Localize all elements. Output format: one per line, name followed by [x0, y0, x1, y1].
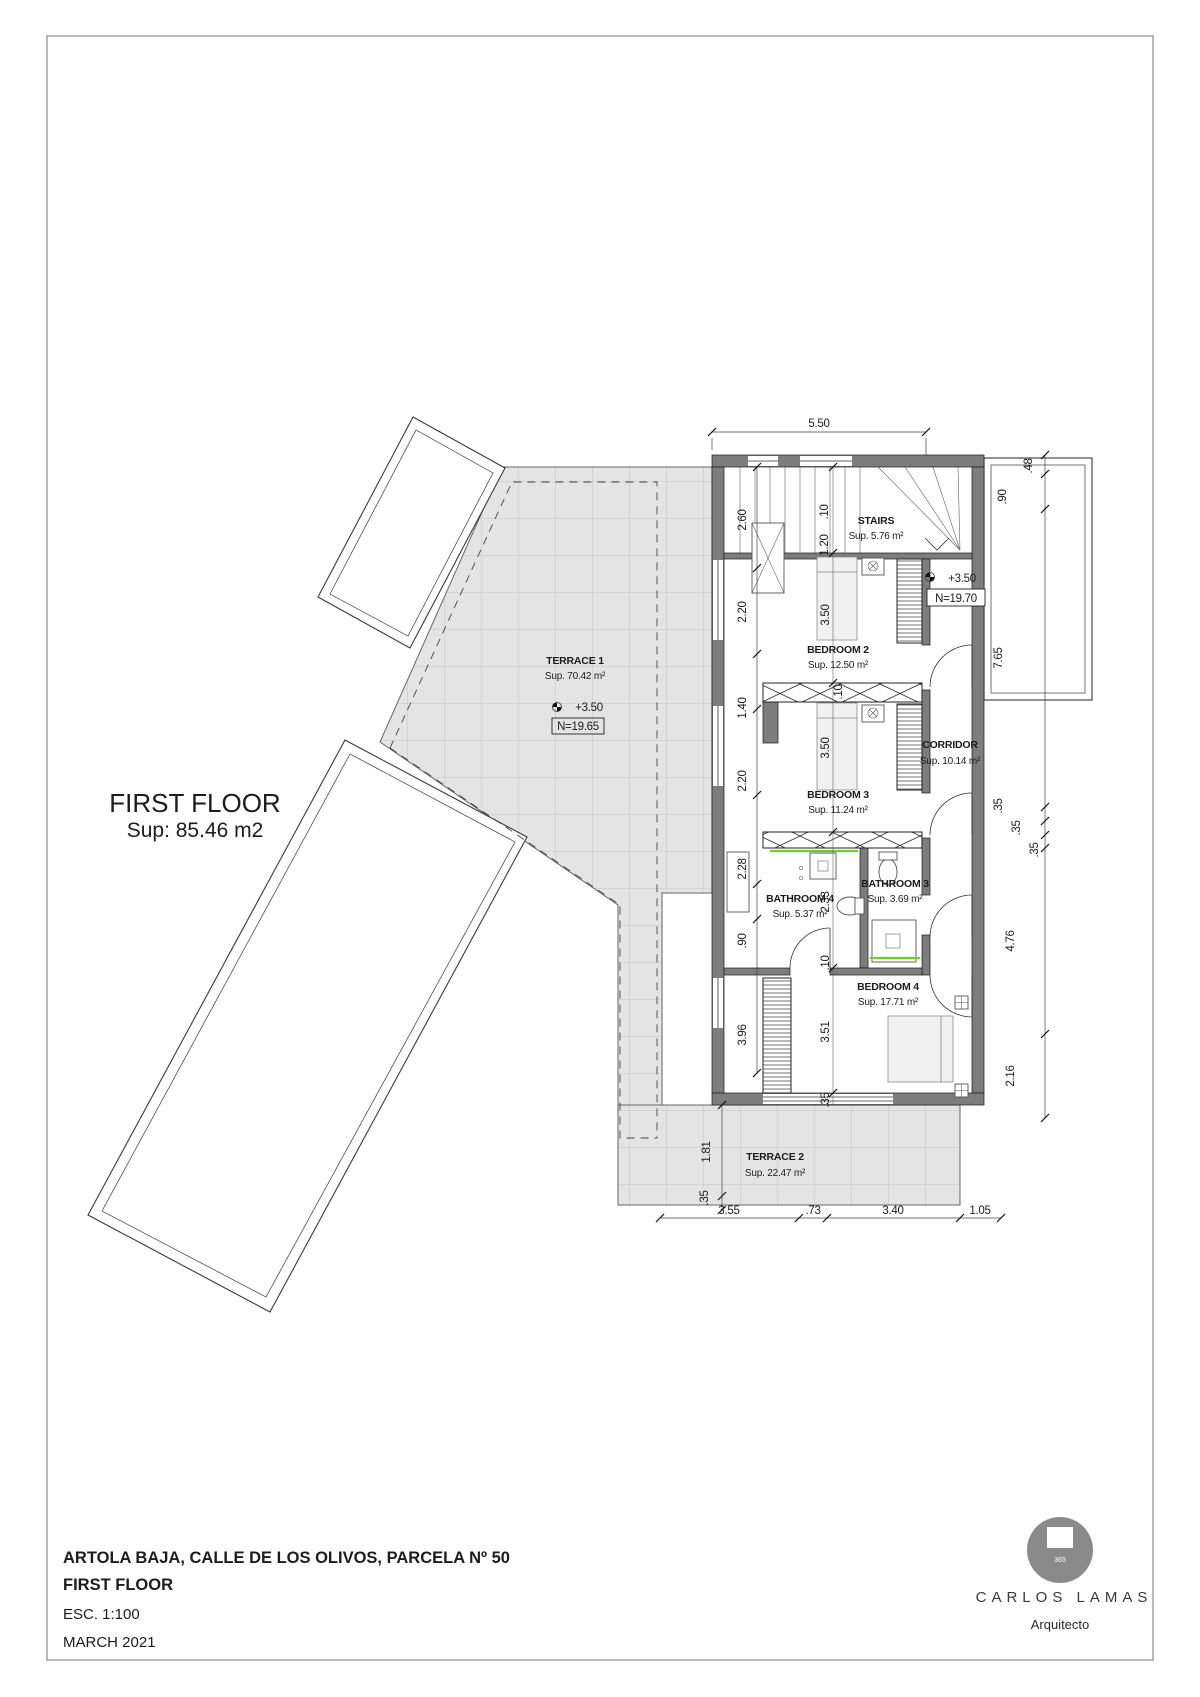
svg-text:N=19.65: N=19.65: [557, 721, 599, 733]
svg-text:CORRIDOR: CORRIDOR: [922, 739, 978, 751]
svg-text:+3.50: +3.50: [948, 573, 976, 585]
logo-circle-icon: [1027, 1517, 1093, 1583]
svg-text:Sup. 11.24 m²: Sup. 11.24 m²: [808, 805, 868, 816]
floor-area: Sup: 85.46 m2: [127, 819, 264, 842]
svg-text:2.20: 2.20: [737, 770, 749, 791]
svg-text:Sup. 3.69 m²: Sup. 3.69 m²: [868, 894, 924, 905]
svg-text:3.96: 3.96: [737, 1024, 749, 1045]
logo-square-icon: [1047, 1527, 1073, 1548]
svg-text:3.55: 3.55: [718, 1205, 739, 1217]
svg-text:.35: .35: [699, 1190, 711, 1205]
drawing-title: FIRST FLOOR: [63, 1576, 173, 1594]
ceiling-light-bedroom3: [862, 705, 884, 722]
svg-text:BEDROOM 3: BEDROOM 3: [807, 789, 869, 801]
svg-text:Sup. 12.50 m²: Sup. 12.50 m²: [808, 660, 869, 671]
svg-text:2.16: 2.16: [1005, 1065, 1017, 1086]
svg-text:BATHROOM 3: BATHROOM 3: [861, 878, 929, 890]
svg-text:.73: .73: [805, 1205, 820, 1217]
architect-subtitle: Arquitecto: [1031, 1617, 1090, 1632]
svg-text:BEDROOM 4: BEDROOM 4: [857, 981, 919, 993]
svg-text:.10: .10: [820, 955, 832, 970]
svg-text:Sup. 22.47 m²: Sup. 22.47 m²: [745, 1168, 806, 1179]
svg-text:2.28: 2.28: [737, 858, 749, 879]
ceiling-light-bedroom2: [862, 558, 884, 575]
floor-title: FIRST FLOOR: [109, 788, 280, 818]
svg-text:TERRACE 2: TERRACE 2: [746, 1151, 804, 1163]
svg-text:2.20: 2.20: [737, 601, 749, 622]
floor-plan-drawing: +3.50 N=19.70 +3.50 N=19.65 STAIRS Sup. …: [0, 0, 1200, 1697]
title-block: ARTOLA BAJA, CALLE DE LOS OLIVOS, PARCEL…: [63, 1549, 510, 1651]
svg-text:.10: .10: [819, 504, 831, 519]
svg-text:5.50: 5.50: [808, 418, 829, 430]
architect-name: CARLOS LAMAS: [976, 1589, 1153, 1606]
wardrobe-bedroom4: [763, 978, 791, 1093]
drawing-sheet: +3.50 N=19.70 +3.50 N=19.65 STAIRS Sup. …: [0, 0, 1200, 1697]
svg-text:.48: .48: [1023, 458, 1035, 473]
architect-logo: 365 CARLOS LAMAS Arquitecto: [976, 1517, 1153, 1632]
svg-text:7.65: 7.65: [993, 647, 1005, 668]
svg-text:3.40: 3.40: [882, 1205, 903, 1217]
svg-text:.90: .90: [997, 489, 1009, 504]
svg-text:.35: .35: [993, 798, 1005, 813]
svg-text:3.51: 3.51: [820, 1021, 832, 1042]
svg-text:Sup. 70.42 m²: Sup. 70.42 m²: [545, 671, 606, 682]
svg-text:BEDROOM 2: BEDROOM 2: [807, 644, 869, 656]
logo-number: 365: [1054, 1557, 1066, 1564]
drawing-date: MARCH 2021: [63, 1634, 156, 1651]
svg-text:+3.50: +3.50: [575, 702, 603, 714]
svg-text:N=19.70: N=19.70: [935, 593, 977, 605]
bed-bedroom2: [817, 557, 857, 640]
svg-text:1.81: 1.81: [701, 1141, 713, 1162]
svg-text:TERRACE 1: TERRACE 1: [546, 655, 604, 667]
svg-text:Sup. 17.71 m²: Sup. 17.71 m²: [858, 997, 919, 1008]
project-address: ARTOLA BAJA, CALLE DE LOS OLIVOS, PARCEL…: [63, 1549, 510, 1567]
svg-text:2.33: 2.33: [820, 891, 832, 912]
svg-text:2.60: 2.60: [737, 509, 749, 530]
svg-text:.10: .10: [833, 684, 845, 699]
svg-text:4.76: 4.76: [1005, 930, 1017, 951]
svg-text:Sup. 10.14 m²: Sup. 10.14 m²: [920, 756, 981, 767]
svg-text:.35: .35: [1029, 842, 1041, 857]
wardrobe-bedroom2: [897, 559, 922, 643]
svg-text:.35: .35: [1011, 820, 1023, 835]
svg-text:1.05: 1.05: [969, 1205, 990, 1217]
svg-text:1.20: 1.20: [819, 534, 831, 555]
svg-text:3.50: 3.50: [820, 604, 832, 625]
svg-text:.90: .90: [737, 933, 749, 948]
svg-text:1.40: 1.40: [737, 697, 749, 718]
wardrobe-bedroom3: [897, 704, 922, 790]
closet-band-bed3-bath: [763, 832, 922, 848]
drawing-scale: ESC. 1:100: [63, 1606, 140, 1623]
svg-text:Sup. 5.76 m²: Sup. 5.76 m²: [849, 531, 905, 542]
svg-text:STAIRS: STAIRS: [858, 515, 895, 527]
svg-text:.35: .35: [820, 1092, 832, 1107]
svg-text:3.50: 3.50: [820, 737, 832, 758]
